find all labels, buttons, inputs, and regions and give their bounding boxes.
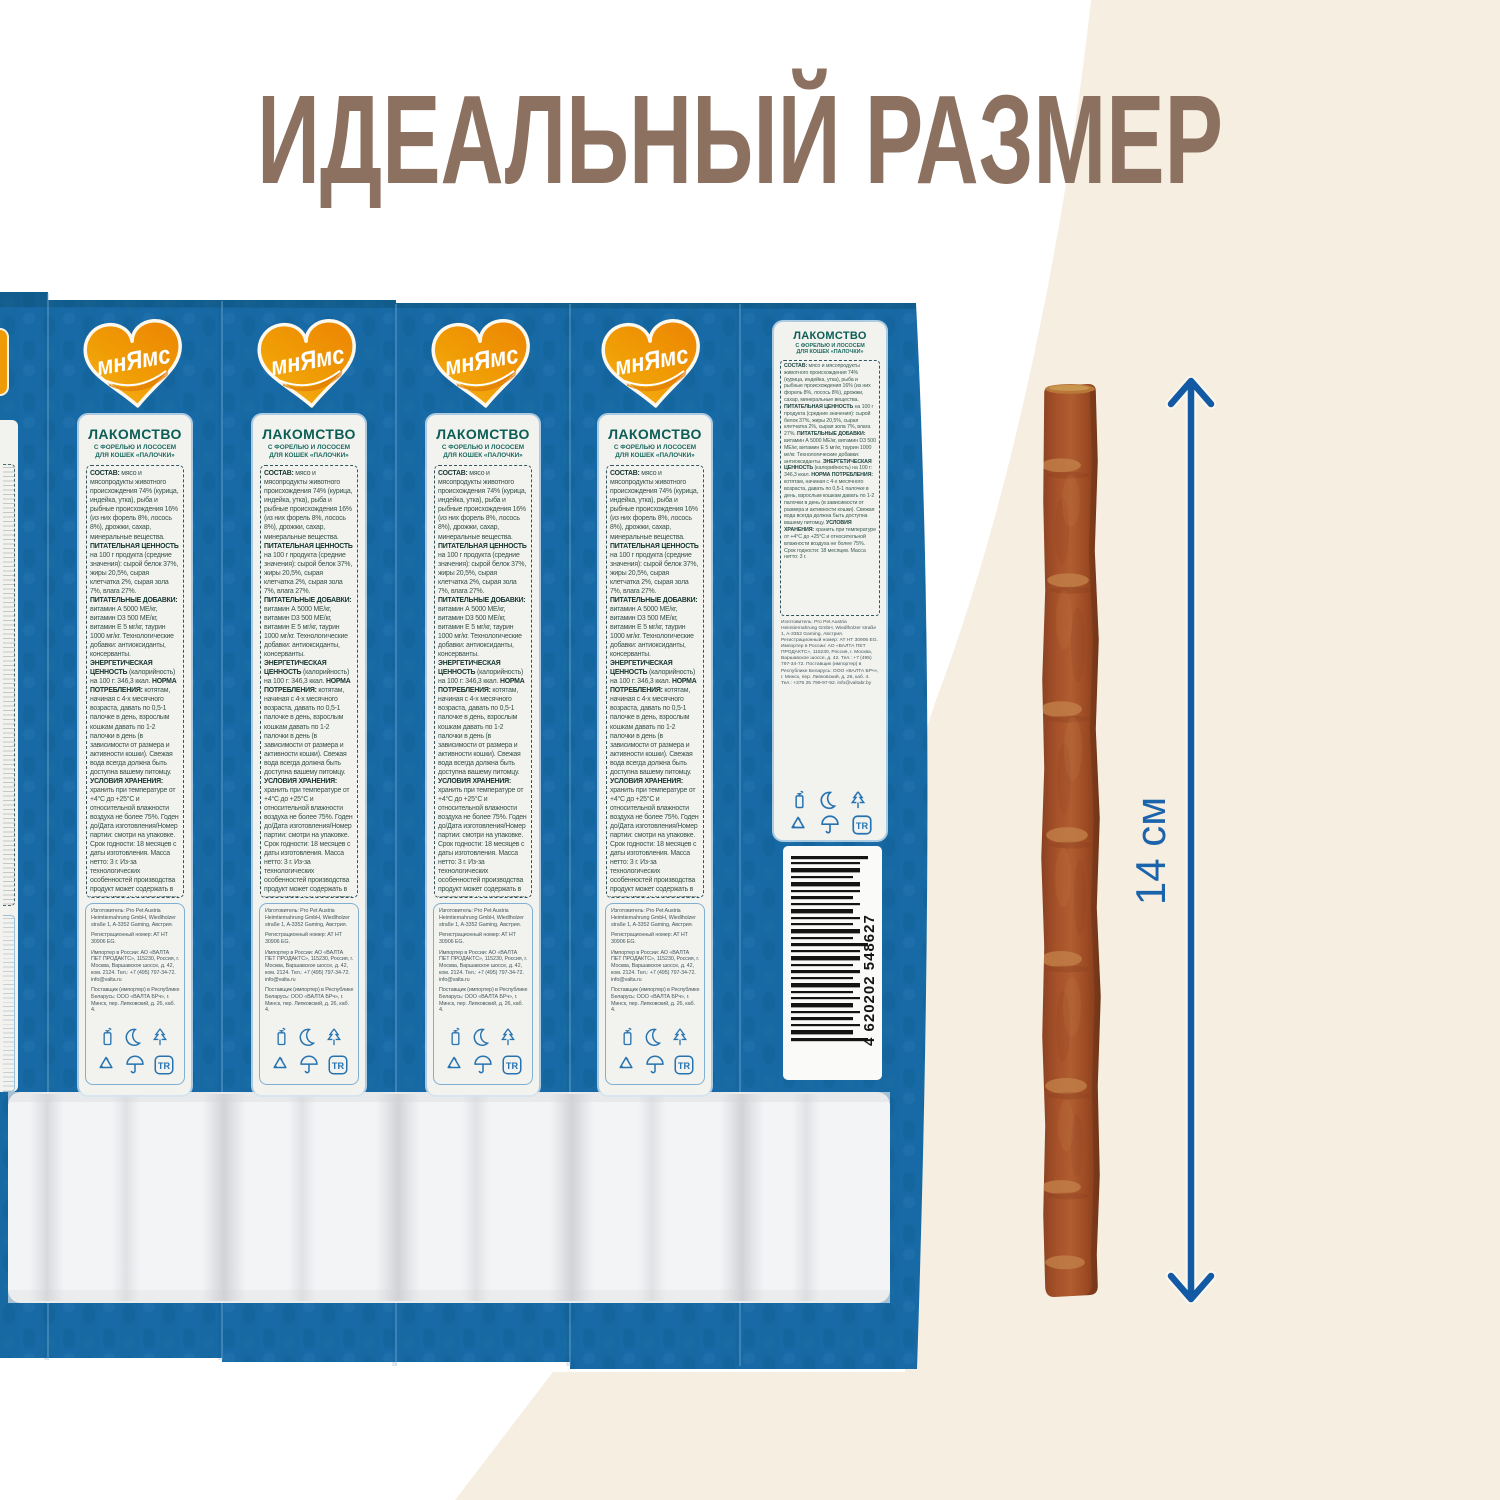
svg-text:TR: TR [856,821,869,831]
svg-text:TR: TR [158,1061,171,1071]
svg-text:4 620202 548627: 4 620202 548627 [861,914,878,1046]
svg-text:TR: TR [678,1061,691,1071]
svg-text:TR: TR [332,1061,345,1071]
svg-text:TR: TR [506,1061,519,1071]
